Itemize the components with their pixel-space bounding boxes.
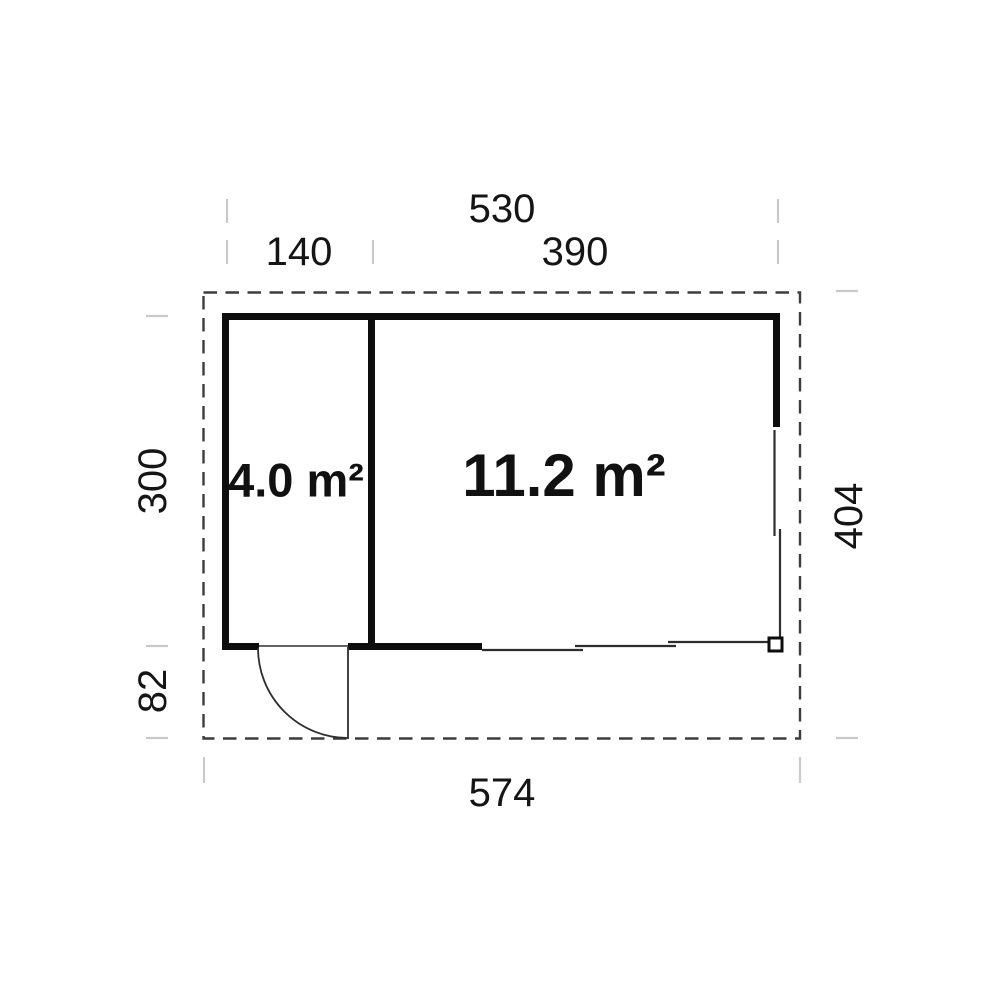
roof-outline-dashed-rect bbox=[204, 293, 801, 739]
corner-post-square bbox=[769, 638, 782, 651]
dimension-left-front-depth: 82 bbox=[133, 669, 173, 714]
dimension-top-total: 530 bbox=[469, 189, 536, 229]
dimension-left-depth: 300 bbox=[133, 448, 173, 515]
dimension-bottom-total-width: 574 bbox=[469, 773, 536, 813]
dimension-top-right-section: 390 bbox=[542, 232, 609, 272]
dimension-top-left-section: 140 bbox=[266, 232, 333, 272]
sliding-panels-right bbox=[775, 430, 781, 638]
dimension-right-total-depth: 404 bbox=[829, 483, 869, 550]
wall-bottom-middle bbox=[348, 643, 482, 650]
wall-interior-partition bbox=[368, 313, 375, 650]
swing-door bbox=[258, 646, 348, 739]
door-swing-arc bbox=[258, 648, 348, 738]
room-area-label-small: 4.0 m² bbox=[228, 457, 364, 504]
wall-bottom-left-stub bbox=[222, 643, 259, 650]
floor-plan-canvas: 530 140 390 300 82 404 574 4.0 m² 11.2 m… bbox=[0, 0, 1000, 1000]
room-area-label-large: 11.2 m² bbox=[462, 446, 665, 506]
wall-top bbox=[222, 313, 780, 320]
wall-right-top-segment bbox=[773, 313, 780, 427]
sliding-panels-bottom bbox=[482, 642, 769, 650]
